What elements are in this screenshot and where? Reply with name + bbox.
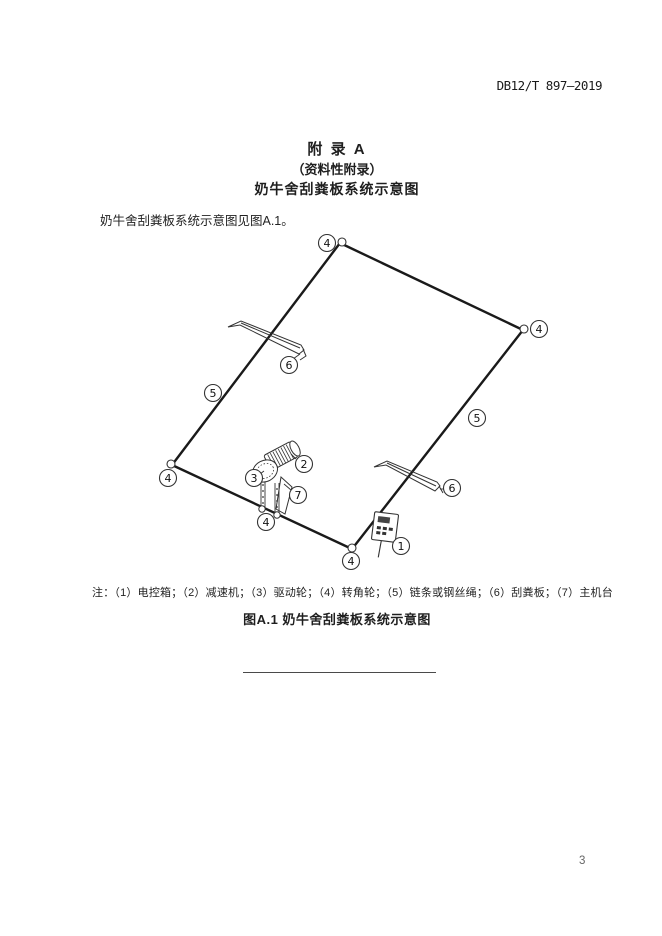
intro-text: 奶牛舍刮粪板系统示意图见图A.1。 — [100, 210, 294, 229]
callout-num: 7 — [295, 489, 302, 502]
corner-wheel-bottom — [348, 544, 356, 552]
base-wheel-right — [274, 512, 280, 518]
callout-num: 1 — [398, 540, 405, 553]
doc-number: DB12/T 897—2019 — [497, 78, 602, 93]
figure-caption: 图A.1 奶牛舍刮粪板系统示意图 — [12, 609, 662, 628]
chain-loop — [172, 243, 523, 549]
callout-numbers: 4 4 4 4 4 5 5 6 6 2 3 7 1 — [165, 237, 543, 568]
appendix-title: 附 录 A — [12, 138, 662, 159]
leader-lines — [260, 354, 445, 490]
appendix-subtitle: （资料性附录） — [12, 159, 662, 178]
callout-num: 4 — [536, 323, 543, 336]
chain-links — [262, 484, 278, 508]
base-wheel-left — [259, 506, 265, 512]
callout-num: 2 — [301, 458, 308, 471]
callout-num: 6 — [449, 482, 456, 495]
scraper-blade-lower — [374, 461, 443, 493]
callout-num: 3 — [251, 472, 258, 485]
callout-num: 4 — [348, 555, 355, 568]
corner-wheel-right — [520, 325, 528, 333]
end-divider — [243, 672, 436, 673]
callout-num: 5 — [474, 412, 481, 425]
scraper-system-diagram: 4 4 4 4 4 5 5 6 6 2 3 7 1 — [140, 228, 564, 576]
callout-num: 5 — [210, 387, 217, 400]
corner-wheel-left — [167, 460, 175, 468]
corner-wheel-top — [338, 238, 346, 246]
callouts — [160, 235, 548, 570]
appendix-heading: 奶牛舍刮粪板系统示意图 — [12, 179, 662, 199]
callout-num: 4 — [324, 237, 331, 250]
control-box — [369, 512, 398, 560]
callout-num: 4 — [263, 516, 270, 529]
page-number: 3 — [579, 855, 585, 867]
callout-num: 6 — [286, 359, 293, 372]
document-page: DB12/T 897—2019 附 录 A （资料性附录） 奶牛舍刮粪板系统示意… — [0, 0, 662, 936]
callout-num: 4 — [165, 472, 172, 485]
figure-note: 注：（1）电控箱；（2）减速机；（3）驱动轮；（4）转角轮；（5）链条或钢丝绳；… — [92, 584, 652, 600]
